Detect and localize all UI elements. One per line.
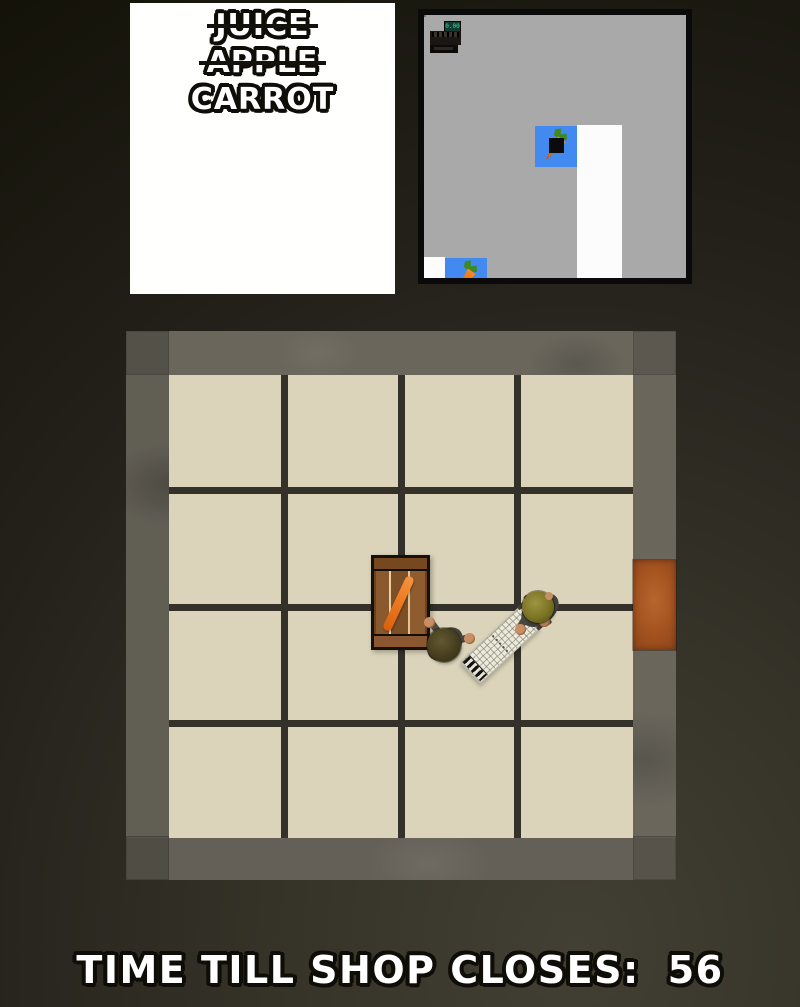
- shopping-list-panel: JUICE APPLE CARROT: [130, 3, 395, 294]
- list-item: CARROT: [130, 81, 395, 118]
- wall-corner: [126, 836, 169, 880]
- player-marker: [549, 138, 564, 153]
- crate-bottom-board: [374, 634, 427, 647]
- shopper-hand: [424, 617, 435, 628]
- list-item: APPLE: [130, 44, 395, 81]
- cash-register-keys: [432, 32, 459, 37]
- wall-corner: [126, 331, 169, 375]
- cart-pusher-nose: [545, 592, 553, 600]
- wall-bottom: [126, 838, 676, 880]
- cart-mesh-marks: [492, 635, 510, 654]
- cash-register-slot: [434, 47, 453, 50]
- timer-label: TIME TILL SHOP CLOSES:: [76, 948, 639, 992]
- minimap-register-tile: 0.00: [424, 15, 426, 17]
- minimap-path-tile: [424, 257, 445, 278]
- list-item-label-juice: JUICE: [215, 7, 309, 44]
- shopper-hand: [464, 633, 475, 644]
- minimap-exit-corridor: [577, 125, 622, 278]
- minimap-carrot-tile: [535, 126, 577, 167]
- wall-corner: [633, 836, 676, 880]
- minimap: 0.00: [418, 9, 692, 284]
- carrot-icon: [445, 258, 487, 284]
- wall-left: [126, 331, 169, 880]
- minimap-carrot-tile: [445, 258, 487, 284]
- crate-top-board: [374, 558, 427, 571]
- list-item-label-apple: APPLE: [207, 44, 319, 81]
- timer-value: 56: [668, 948, 724, 992]
- list-item-label-carrot: CARROT: [191, 81, 334, 118]
- list-item: JUICE: [130, 7, 395, 44]
- wall-corner: [633, 331, 676, 375]
- shop-timer: TIME TILL SHOP CLOSES:56: [0, 948, 800, 992]
- shopper-at-crate-head: [427, 628, 461, 662]
- exit-door: [633, 560, 676, 650]
- cart-pusher-hand: [515, 624, 526, 635]
